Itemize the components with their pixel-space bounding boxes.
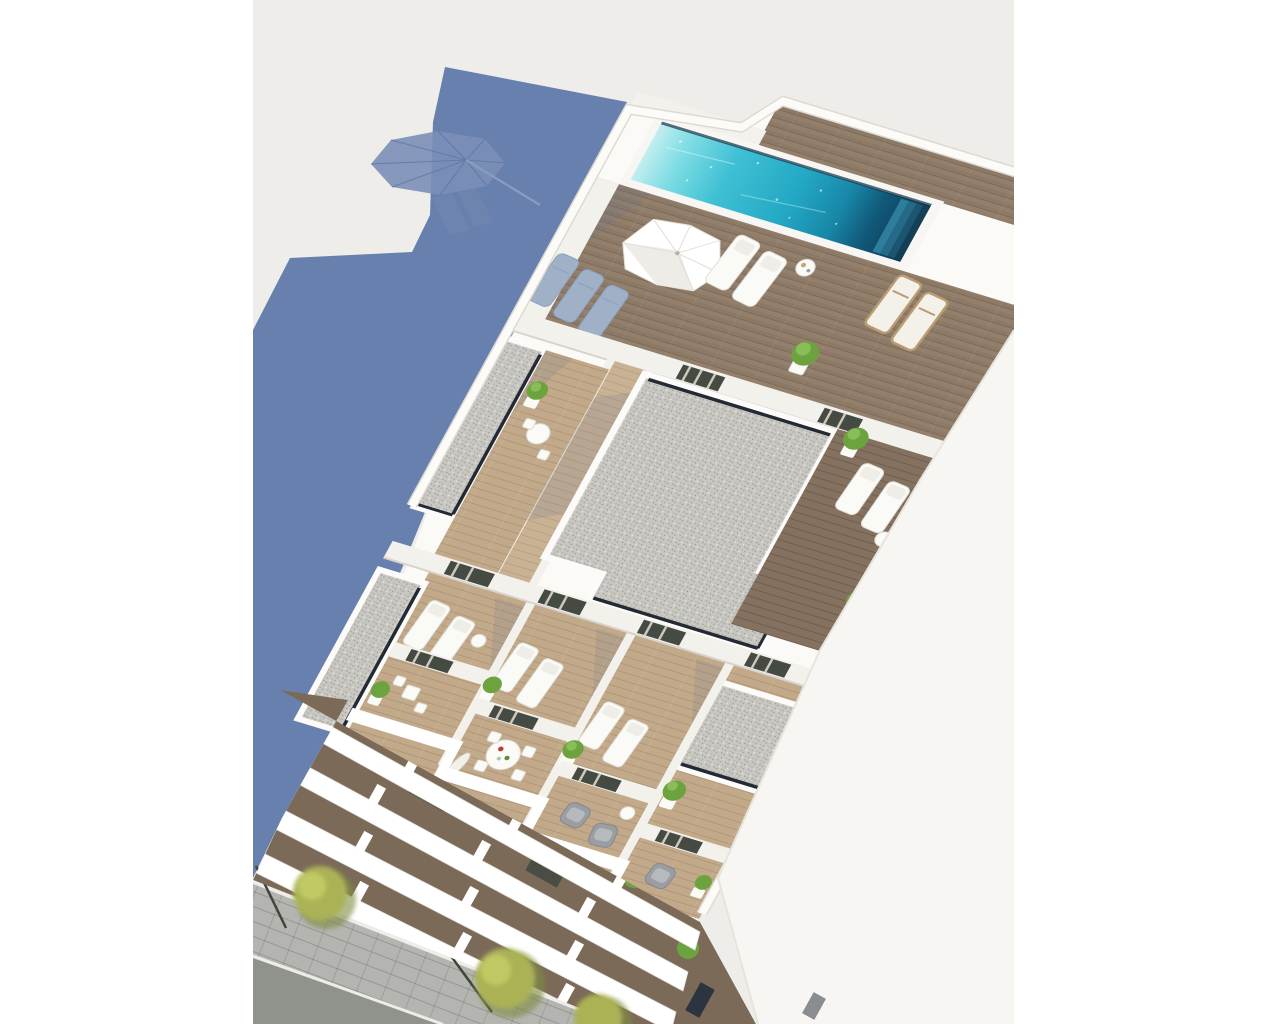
architectural-render — [0, 0, 1280, 1024]
left-margin — [0, 0, 253, 1024]
render-canvas — [0, 0, 1280, 1024]
right-margin — [1014, 0, 1280, 1024]
